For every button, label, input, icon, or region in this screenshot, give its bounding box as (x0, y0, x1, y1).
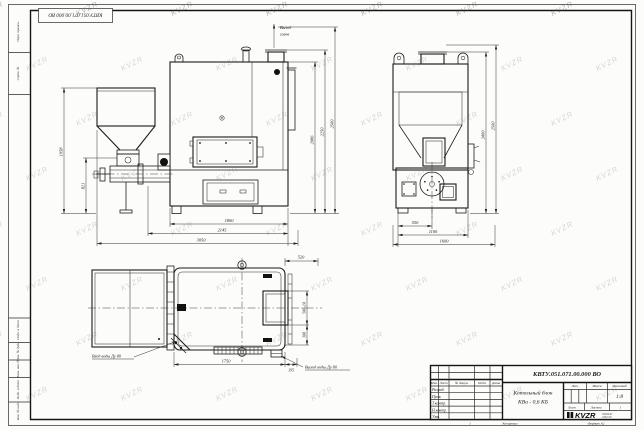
margin-label-vzam-inv: Взам. инв. № (16, 359, 20, 378)
tb-row-tkontr: Т.контр. (432, 402, 446, 406)
plan-view: 520 500±10 300 1750 195 Вход воды Ду 80 … (88, 255, 350, 373)
drawing-sheet: Перв. примен. Справ. № Инв. № подл. Подп… (0, 0, 644, 430)
dim-plan-top: 520 (298, 255, 305, 260)
tb-sheets-label: Листов (589, 405, 602, 409)
tb-doc-number: КВТУ.051.071.00.000 ВО (532, 371, 601, 378)
dim-mid-width: 2145 (218, 228, 228, 233)
front-hopper (97, 88, 155, 126)
side-door (423, 138, 445, 166)
front-feeder-bearing (160, 158, 168, 166)
footer-format-label: Формат А2 (588, 422, 605, 426)
tb-col-izm: Изм. (430, 381, 438, 385)
corner-stamp-number: КВТУ.051.071.00.000 ВО (48, 12, 103, 18)
dim-side-height-inner: 2400 (481, 130, 486, 140)
dim-side-total-width: 1600 (440, 239, 450, 244)
margin-label-podp-data-1: Подп. и дата (16, 380, 20, 401)
sheet-frame: Перв. примен. Справ. № Инв. № подл. Подп… (9, 5, 636, 426)
dim-body-width: 1800 (225, 218, 235, 223)
dim-plan-door-width: 500±10 (303, 302, 307, 314)
title-block: Изм. Лист № докум. Подп. Дата Разраб. Пр… (430, 366, 632, 420)
front-view: Выход газов 821 1958 2086 2250 2500 1800… (59, 24, 340, 246)
front-fuel-door (193, 137, 257, 167)
tb-col-list: Лист (439, 381, 448, 385)
front-cap-nut (274, 69, 280, 75)
margin-label-sprav-no: Справ. № (16, 66, 20, 81)
dim-side-body-width: 1100 (429, 229, 438, 234)
flue-outlet-label-line1: Выход (280, 25, 291, 30)
dim-plan-outlet-offset: 300 (303, 332, 307, 338)
tb-logo-note-2: 3452 КР (602, 415, 612, 419)
tb-product-name-2: КВа - 0,6 КБ (517, 400, 549, 406)
footer-page-number: 1 (469, 422, 471, 426)
footer-copied-label: Копировал (501, 422, 518, 426)
sheet-footer: 1 Копировал Формат А2 (469, 422, 605, 426)
margin-label-inv-dubl: Инв. № дубл. (16, 342, 20, 362)
tb-row-nkontr: Н.контр. (431, 408, 447, 412)
tb-row-utv: Утв. (432, 415, 440, 419)
manufacturer-logo: KVZR (575, 411, 596, 420)
tb-sheets-value: 1 (620, 405, 622, 409)
margin-label-inv-podl: Инв. № подл. (16, 401, 20, 421)
dim-plan-side-offset: 195 (288, 369, 294, 373)
tb-row-razrab: Разраб. (431, 388, 445, 392)
water-inlet-label: Вход воды Ду 80 (92, 354, 122, 359)
dim-chimney-height: 2250 (320, 127, 325, 137)
water-outlet-label: Выход воды Ду 80 (305, 365, 338, 370)
dim-total-height: 2500 (330, 119, 335, 129)
margin-label-podp-data-2: Подп. и дата (16, 320, 20, 341)
tb-row-prov: Пров. (431, 395, 441, 399)
tb-product-name-1: Котельный блок (512, 390, 552, 397)
tb-scale-label: Масштаб (611, 384, 627, 388)
dim-feeder-height: 821 (81, 183, 86, 190)
dim-body-height: 2086 (310, 135, 315, 145)
dim-total-width: 3050 (197, 238, 207, 243)
tb-mass-label: Масса (591, 384, 601, 388)
tb-col-data: Дата (491, 381, 500, 385)
dim-side-half-width: 550 (412, 220, 419, 225)
corner-stamp: КВТУ.051.071.00.000 ВО (39, 9, 113, 23)
tb-scale-value: 1:8 (616, 394, 623, 400)
tb-col-podp: Подп. (477, 381, 487, 385)
plan-hopper (92, 270, 167, 347)
tb-logo-note-1: 453844Р (602, 412, 613, 416)
margin-label-perv-primen: Перв. примен. (16, 21, 20, 42)
tb-sheet-label: Лист (567, 405, 576, 409)
engineering-drawing: Перв. примен. Справ. № Инв. № подл. Подп… (0, 0, 644, 430)
plan-body (174, 268, 285, 350)
dim-hopper-height: 1958 (59, 147, 64, 157)
front-ash-door (203, 180, 258, 204)
dim-plan-length: 1750 (222, 359, 232, 364)
dim-side-height-total: 2500 (491, 121, 496, 131)
side-view: 550 1100 1600 2400 2500 (393, 45, 499, 247)
flue-outlet-label-line2: газов (280, 32, 289, 37)
tb-col-dokum: № докум. (454, 381, 469, 385)
tb-lit-label: Лит. (570, 384, 578, 388)
